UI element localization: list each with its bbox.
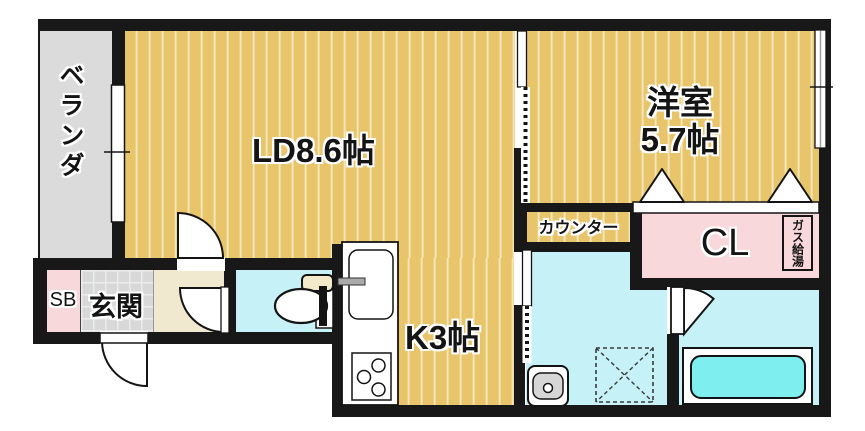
veranda-window-icon bbox=[104, 85, 130, 222]
kitchen-washroom-sliding-door-icon bbox=[514, 250, 532, 363]
floor-plan: ベランダ LD8.6帖 洋室 5.7帖 カウンター CL K3帖 SB 玄関 ガ… bbox=[0, 0, 865, 431]
shoe-box-label: SB bbox=[45, 289, 81, 312]
bathroom-door-swing-icon bbox=[667, 287, 714, 334]
washbasin-icon bbox=[528, 366, 568, 406]
bathtub-icon bbox=[683, 348, 812, 404]
western-room-size-label: 5.7帖 bbox=[600, 113, 760, 161]
gas-stove-icon bbox=[352, 353, 391, 400]
closet-label: CL bbox=[680, 222, 770, 265]
toilet-door-swing-icon bbox=[180, 287, 229, 333]
washing-machine-pan-icon bbox=[596, 348, 653, 402]
fixtures-overlay bbox=[0, 0, 865, 431]
ld-western-sliding-door-icon bbox=[518, 31, 531, 203]
gas-water-heater-label: ガス給湯 bbox=[792, 219, 804, 267]
ld-door-swing-icon bbox=[177, 213, 225, 271]
veranda-label: ベランダ bbox=[52, 62, 88, 182]
folding-closet-door-icon bbox=[633, 169, 819, 213]
entrance-label: 玄関 bbox=[80, 285, 152, 324]
counter-label: カウンター bbox=[527, 214, 630, 238]
living-dining-label: LD8.6帖 bbox=[252, 124, 375, 172]
kitchen-label: K3帖 bbox=[405, 311, 480, 359]
entrance-door-swing-icon bbox=[100, 331, 148, 386]
western-room-window-icon bbox=[810, 30, 833, 148]
toilet-icon bbox=[275, 275, 333, 328]
gas-water-heater-box: ガス給湯 bbox=[782, 215, 813, 271]
